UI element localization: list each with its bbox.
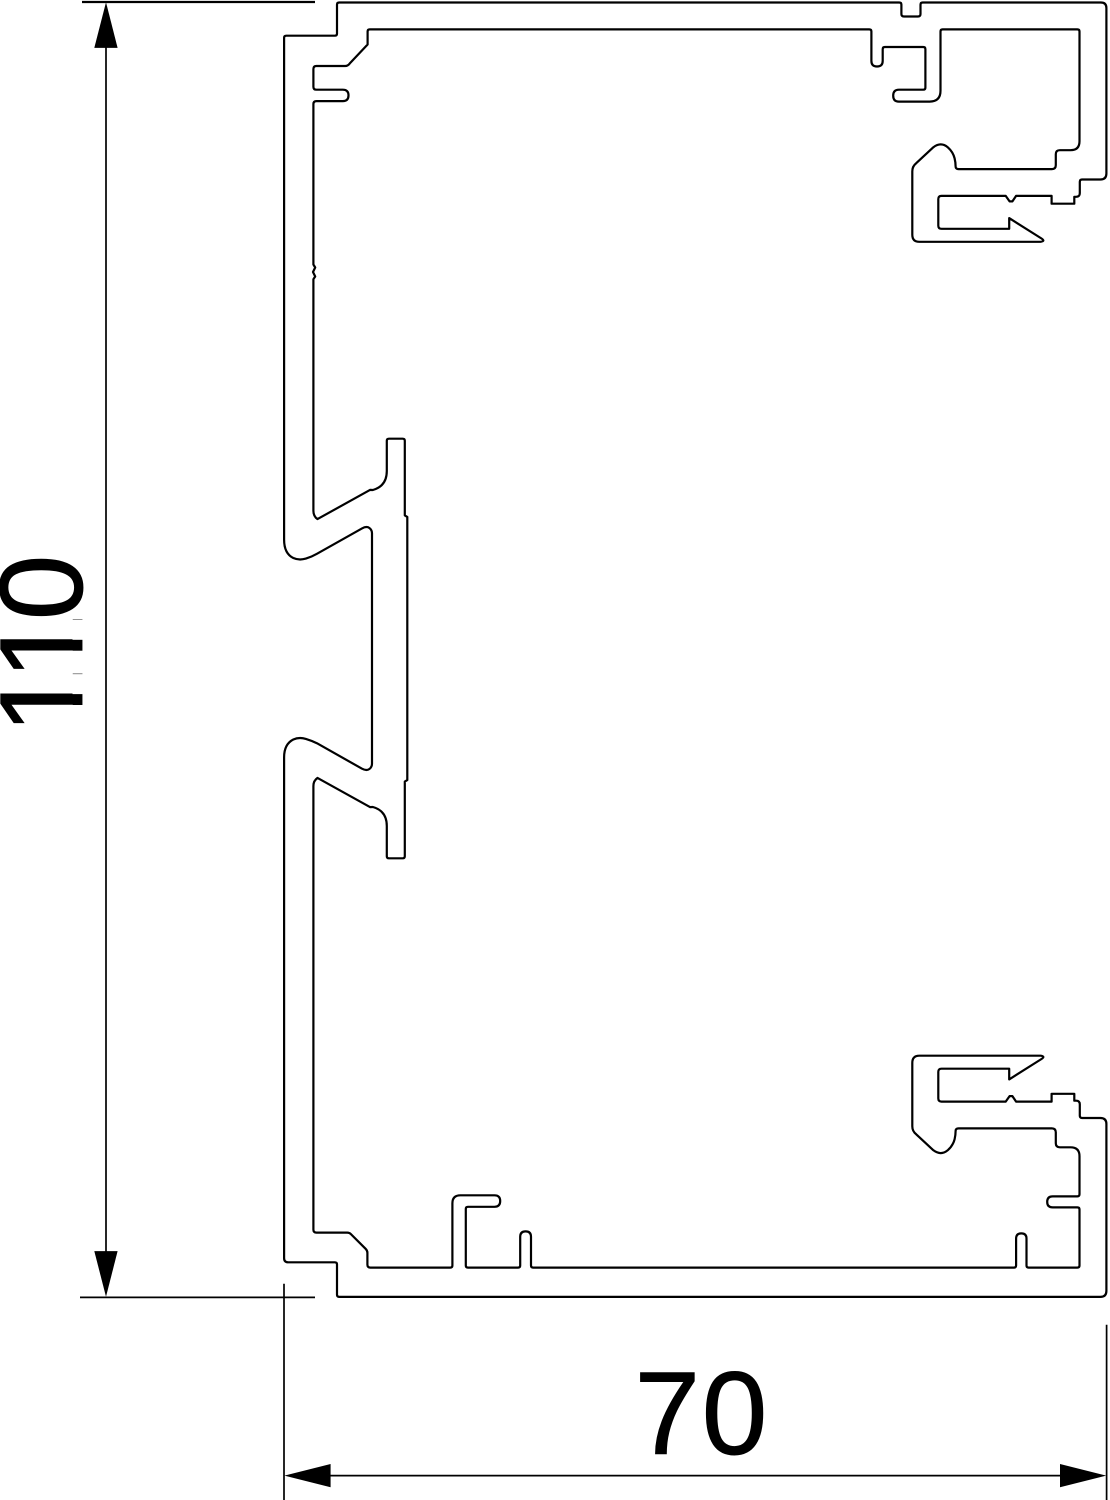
- svg-text:0: 0: [0, 555, 108, 621]
- svg-text:1: 1: [0, 614, 108, 680]
- svg-text:0: 0: [702, 1348, 768, 1480]
- svg-text:7: 7: [635, 1348, 701, 1480]
